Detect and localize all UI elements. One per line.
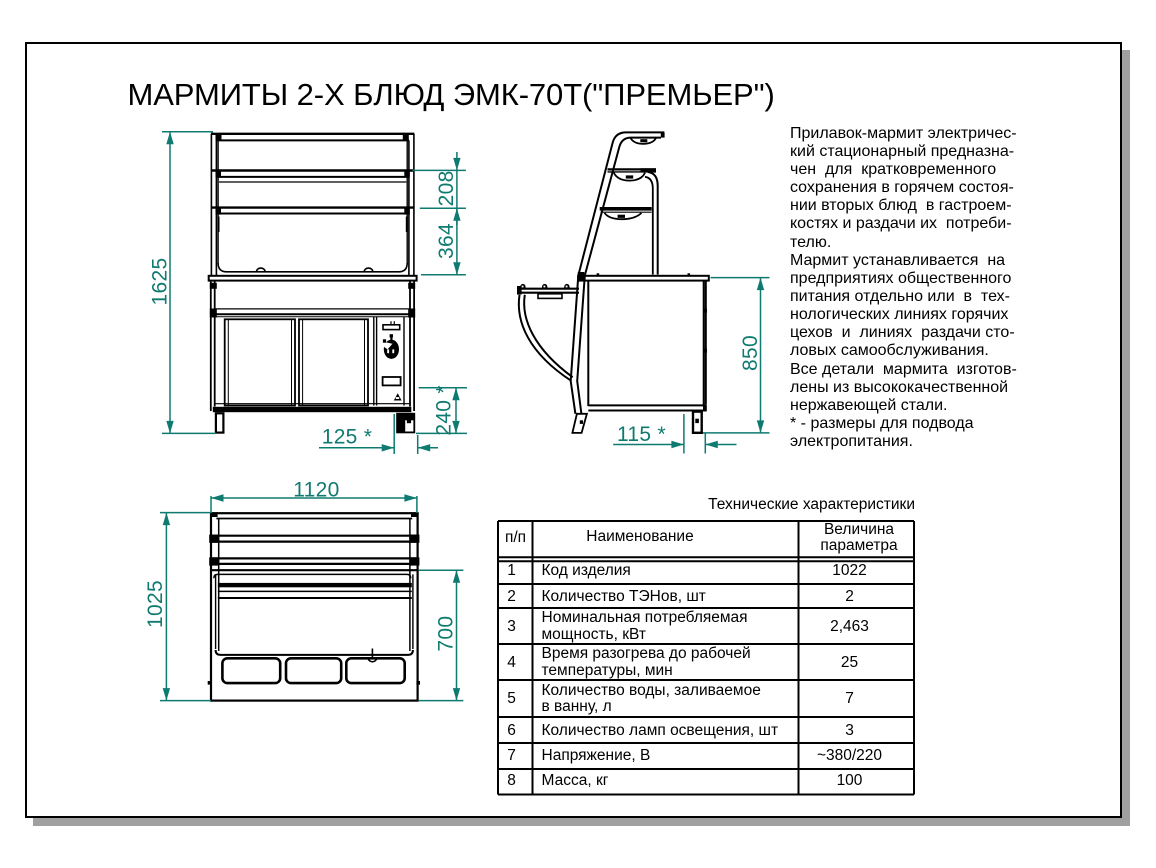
svg-text:208: 208 <box>435 170 458 206</box>
svg-text:1025: 1025 <box>144 580 167 628</box>
svg-text:240 *: 240 * <box>433 385 456 436</box>
svg-text:115 *: 115 * <box>617 423 666 446</box>
svg-text:700: 700 <box>434 616 457 652</box>
svg-text:1120: 1120 <box>293 478 339 501</box>
svg-text:1625: 1625 <box>149 258 172 306</box>
svg-text:364: 364 <box>435 223 458 259</box>
svg-text:850: 850 <box>739 335 762 371</box>
svg-text:125 *: 125 * <box>322 426 373 449</box>
